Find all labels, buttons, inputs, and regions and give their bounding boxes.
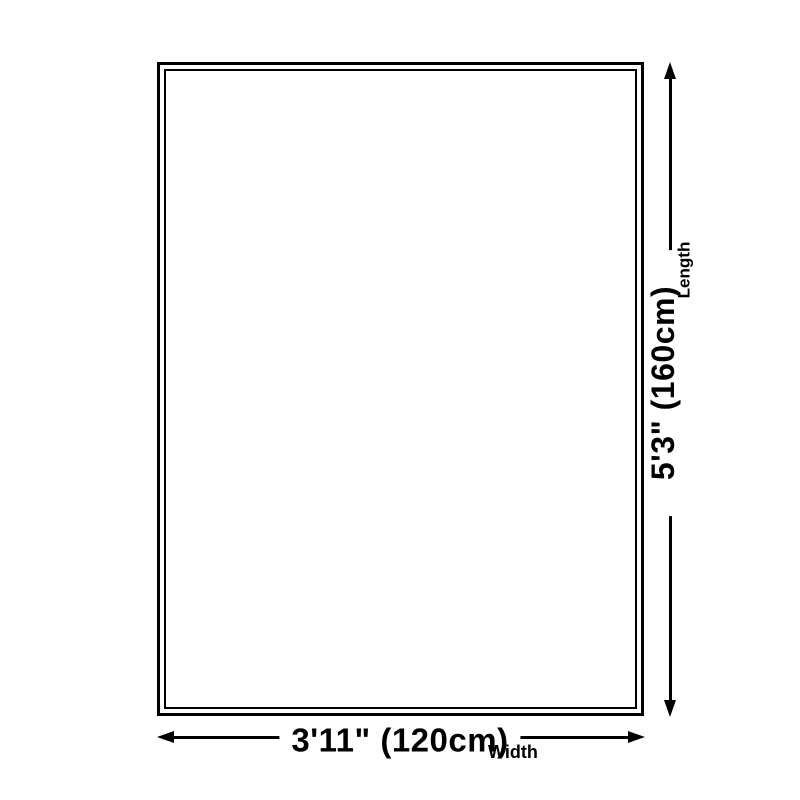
product-outline-inner: [164, 69, 637, 709]
arrow-left-icon: [157, 731, 174, 743]
width-value: 3'11" (120cm): [279, 724, 520, 757]
dimension-diagram: 5'3" (160cm) Length 3'11" (120cm) Width: [0, 0, 800, 800]
width-label: Width: [488, 743, 538, 761]
arrow-up-icon: [664, 62, 676, 79]
arrow-right-icon: [628, 731, 645, 743]
product-outline-outer: [157, 62, 644, 716]
arrow-down-icon: [664, 700, 676, 717]
length-label: Length: [676, 242, 693, 299]
